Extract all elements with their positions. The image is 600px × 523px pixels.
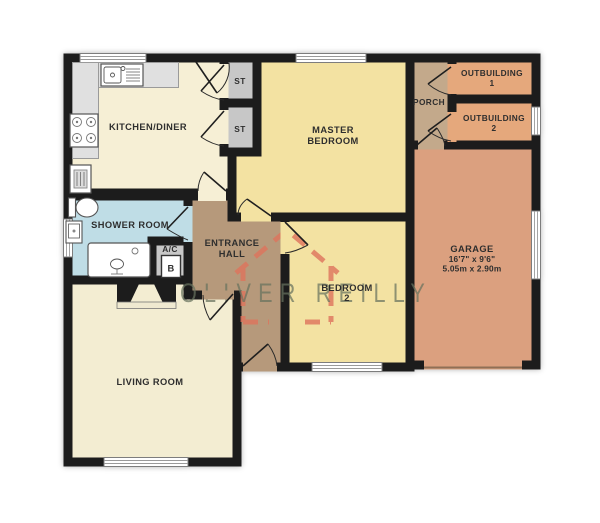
floor-plan-page: OLIVER REILLY	[0, 0, 600, 523]
label-master-2: BEDROOM	[307, 136, 358, 146]
sink-icon	[101, 64, 143, 86]
label-garage-metric: 5.05m x 2.90m	[443, 264, 502, 274]
label-garage: GARAGE	[450, 244, 493, 254]
label-porch: PORCH	[413, 97, 445, 107]
label-outbuilding1-2: 1	[489, 78, 494, 88]
hob-icon	[70, 114, 98, 147]
basin-icon	[66, 221, 82, 243]
window-master	[296, 54, 366, 63]
label-outbuilding2-1: OUTBUILDING	[463, 113, 525, 123]
oven-icon	[70, 165, 91, 193]
label-outbuilding2-2: 2	[491, 123, 496, 133]
label-ac: A/C	[162, 244, 178, 254]
toilet-icon	[69, 198, 99, 217]
label-shower: SHOWER ROOM	[91, 220, 169, 230]
window-kitchen	[80, 54, 146, 63]
label-outbuilding1-1: OUTBUILDING	[461, 68, 523, 78]
window-outbuilding2	[532, 107, 541, 135]
boiler-icon: B	[162, 256, 181, 278]
label-bedroom2-1: BEDROOM	[321, 283, 372, 293]
label-hall-2: HALL	[219, 249, 245, 259]
boiler-letter: B	[167, 264, 174, 274]
vanity-icon	[88, 243, 150, 277]
floor-plan-svg: OLIVER REILLY	[0, 0, 600, 523]
label-garage-imperial: 16'7" x 9'6"	[449, 254, 496, 264]
window-bedroom2	[312, 363, 382, 372]
label-master-1: MASTER	[312, 125, 354, 135]
garage-door	[424, 361, 522, 370]
label-living: LIVING ROOM	[117, 377, 184, 387]
label-kitchen: KITCHEN/DINER	[109, 122, 187, 132]
window-garage	[532, 211, 541, 279]
label-bedroom2-2: 2	[344, 293, 350, 303]
label-hall-1: ENTRANCE	[205, 238, 260, 248]
label-st1: ST	[234, 76, 245, 86]
window-living	[104, 458, 188, 467]
label-st2: ST	[234, 124, 245, 134]
